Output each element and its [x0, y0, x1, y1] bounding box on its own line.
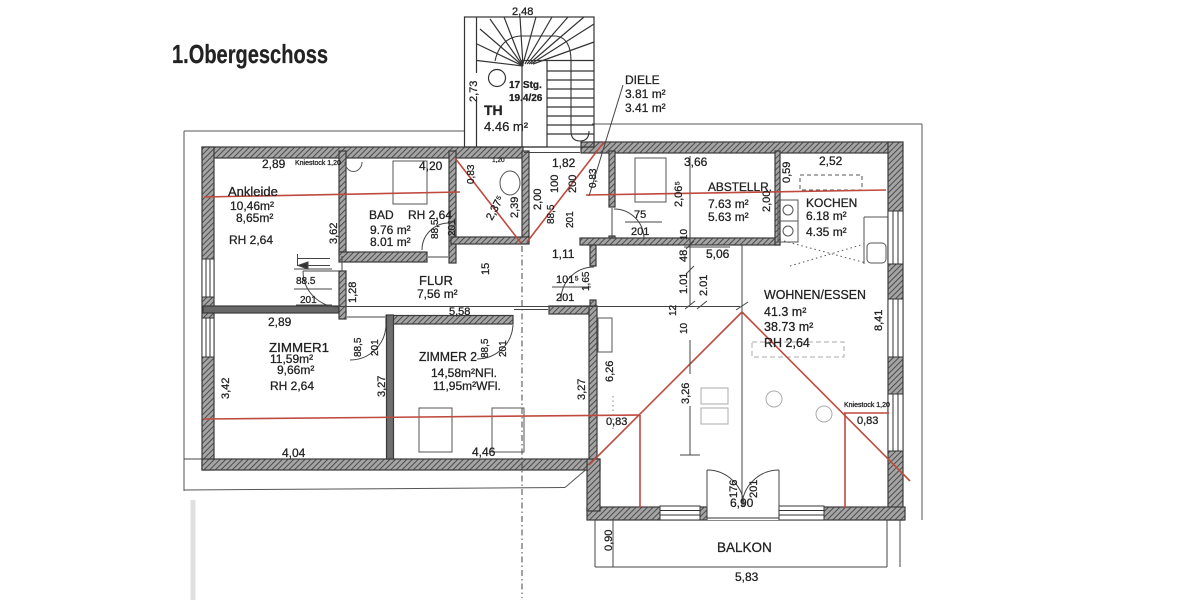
svg-text:3.81 m²: 3.81 m² [625, 87, 666, 101]
svg-text:1,65: 1,65 [581, 271, 592, 291]
svg-text:1,20: 1,20 [492, 157, 505, 164]
svg-text:Ankleide: Ankleide [228, 184, 278, 199]
svg-text:101⁵: 101⁵ [556, 274, 579, 286]
svg-text:201: 201 [565, 211, 576, 228]
svg-text:201: 201 [498, 340, 509, 357]
svg-text:FLUR: FLUR [419, 273, 453, 288]
svg-text:201: 201 [447, 219, 458, 236]
svg-text:3,66: 3,66 [684, 155, 708, 169]
svg-text:7.63 m²: 7.63 m² [708, 197, 749, 211]
svg-text:88,5: 88,5 [546, 204, 557, 224]
svg-text:5,58: 5,58 [449, 306, 470, 318]
svg-text:201: 201 [556, 292, 574, 304]
svg-text:2,73: 2,73 [468, 81, 480, 102]
svg-text:2,89: 2,89 [262, 157, 286, 171]
svg-text:3,27: 3,27 [376, 376, 388, 397]
svg-text:4,20: 4,20 [419, 159, 443, 173]
svg-text:0,83: 0,83 [588, 168, 599, 188]
svg-text:TH: TH [484, 102, 503, 118]
svg-text:3.41 m²: 3.41 m² [625, 101, 666, 115]
svg-text:200: 200 [567, 175, 579, 193]
svg-text:2,52: 2,52 [819, 154, 843, 168]
svg-text:11,95m²WFl.: 11,95m²WFl. [433, 379, 501, 393]
svg-text:88,5: 88,5 [480, 338, 491, 358]
svg-text:4,46: 4,46 [472, 445, 496, 459]
svg-text:3,42: 3,42 [220, 378, 232, 399]
svg-text:100: 100 [549, 175, 561, 193]
svg-text:5,06: 5,06 [706, 247, 730, 261]
svg-text:2,89: 2,89 [268, 315, 292, 329]
svg-text:RH 2,64: RH 2,64 [229, 233, 273, 247]
svg-text:88.5: 88.5 [296, 276, 316, 287]
svg-text:201: 201 [370, 339, 381, 356]
svg-text:3,26: 3,26 [680, 383, 692, 404]
svg-text:2,39: 2,39 [509, 197, 521, 218]
svg-text:3,27: 3,27 [576, 379, 588, 400]
svg-text:5,83: 5,83 [735, 570, 759, 584]
svg-text:10: 10 [679, 322, 690, 334]
svg-text:88,5: 88,5 [430, 219, 441, 239]
svg-text:1,11: 1,11 [552, 247, 575, 261]
svg-text:75: 75 [634, 209, 646, 221]
svg-text:12: 12 [668, 304, 679, 316]
svg-text:10: 10 [679, 228, 690, 240]
svg-text:WOHNEN/ESSEN: WOHNEN/ESSEN [764, 287, 866, 302]
svg-text:Kniestock 1,20: Kniestock 1,20 [295, 160, 341, 167]
svg-text:2,48: 2,48 [512, 6, 533, 18]
svg-text:2.01: 2.01 [698, 275, 710, 296]
svg-text:4.46 m²: 4.46 m² [484, 119, 529, 134]
svg-text:201: 201 [631, 226, 649, 238]
svg-text:0,83: 0,83 [857, 415, 878, 427]
svg-text:KOCHEN: KOCHEN [806, 196, 857, 210]
svg-text:1,82: 1,82 [552, 156, 576, 170]
svg-text:BALKON: BALKON [717, 540, 772, 555]
svg-text:1.Obergeschoss: 1.Obergeschoss [172, 39, 328, 69]
svg-text:6.18 m²: 6.18 m² [806, 209, 847, 223]
svg-text:201: 201 [300, 295, 317, 306]
svg-text:0,90: 0,90 [603, 530, 615, 551]
svg-text:RH 2,64: RH 2,64 [764, 336, 810, 350]
svg-text:17 Stg.: 17 Stg. [509, 80, 542, 91]
svg-text:0,59: 0,59 [781, 162, 793, 183]
svg-text:4,04: 4,04 [282, 446, 306, 460]
svg-text:Kniestock 1,20: Kniestock 1,20 [844, 402, 890, 409]
svg-text:RH 2,64: RH 2,64 [270, 379, 314, 393]
svg-text:5.63 m²: 5.63 m² [708, 210, 749, 224]
svg-text:0,83: 0,83 [606, 416, 627, 428]
svg-text:38.73 m²: 38.73 m² [764, 320, 813, 334]
svg-text:48: 48 [678, 250, 690, 262]
svg-text:88,5: 88,5 [353, 337, 364, 357]
svg-text:ZIMMER 2: ZIMMER 2 [419, 349, 477, 364]
svg-text:41.3 m²: 41.3 m² [764, 305, 806, 319]
svg-text:2,06⁵: 2,06⁵ [673, 181, 685, 207]
svg-text:6,26: 6,26 [604, 361, 616, 382]
svg-text:1,28: 1,28 [347, 282, 359, 303]
svg-text:2,00: 2,00 [532, 189, 544, 210]
svg-text:BAD: BAD [369, 208, 394, 222]
svg-text:DIELE: DIELE [625, 73, 660, 87]
svg-text:2,00: 2,00 [761, 191, 773, 212]
svg-text:1.01: 1.01 [678, 273, 690, 294]
svg-text:4.35 m²: 4.35 m² [806, 225, 847, 239]
svg-text:3,62: 3,62 [328, 223, 340, 244]
svg-text:6,90: 6,90 [730, 496, 754, 510]
svg-text:14,58m²NFl.: 14,58m²NFl. [431, 366, 497, 380]
svg-text:19.4/26: 19.4/26 [509, 93, 543, 104]
svg-text:8,41: 8,41 [873, 310, 885, 331]
svg-text:7,56 m²: 7,56 m² [417, 287, 458, 301]
svg-text:8,65m²: 8,65m² [236, 211, 273, 225]
svg-text:8.01 m²: 8.01 m² [370, 235, 411, 249]
svg-text:9,66m²: 9,66m² [277, 363, 314, 377]
svg-text:15: 15 [480, 263, 492, 275]
svg-text:0,83: 0,83 [466, 164, 477, 184]
